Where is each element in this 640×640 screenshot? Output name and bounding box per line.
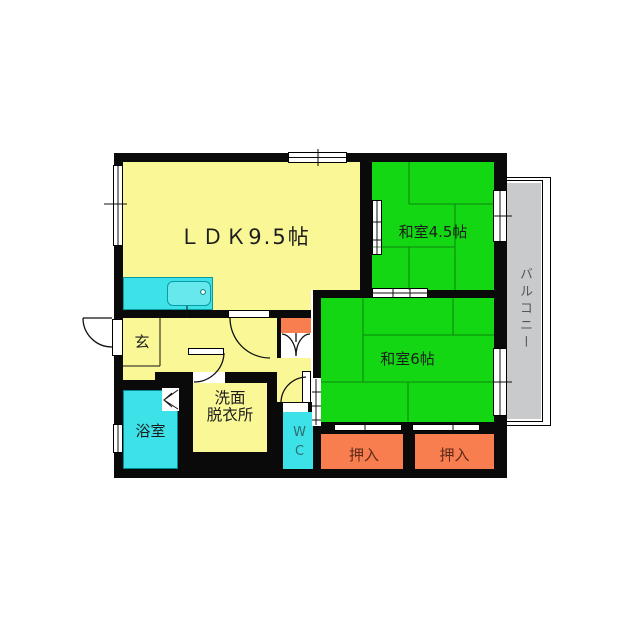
floorplan: ＬＤＫ9.5帖 和室4.5帖 和室6帖 玄 浴室 洗面 脱衣所 WC 押入 押入… bbox=[0, 0, 640, 640]
room-label-closet-left: 押入 bbox=[321, 444, 407, 465]
hall-storage bbox=[281, 318, 311, 333]
entrance-door-opening bbox=[112, 319, 123, 356]
sliding-door-hall-6 bbox=[312, 378, 321, 426]
room-label-japanese-45: 和室4.5帖 bbox=[372, 221, 494, 242]
kitchen-sink bbox=[167, 281, 211, 306]
room-label-japanese-6: 和室6帖 bbox=[321, 348, 494, 369]
room-label-ldk: ＬＤＫ9.5帖 bbox=[128, 221, 362, 251]
wall-segment bbox=[275, 402, 283, 469]
room-label-balcony: バルコニー bbox=[517, 252, 534, 367]
wall-segment bbox=[193, 452, 283, 469]
wall-segment bbox=[178, 380, 193, 469]
kitchen-counter bbox=[123, 277, 213, 310]
window-balcony-45 bbox=[493, 190, 507, 242]
room-label-entrance: 玄 bbox=[123, 331, 161, 352]
wall-segment bbox=[123, 310, 311, 318]
wall-segment bbox=[123, 380, 193, 390]
washroom-door-leaf bbox=[188, 348, 224, 355]
door-opening-washroom bbox=[193, 372, 225, 383]
window-left-ldk bbox=[113, 165, 123, 246]
sliding-door-45-6 bbox=[372, 288, 428, 298]
room-label-bathroom: 浴室 bbox=[123, 420, 178, 441]
wall-segment bbox=[277, 318, 281, 358]
hallway-strip bbox=[123, 372, 155, 380]
wc-door-leaf bbox=[302, 371, 311, 403]
room-label-closet-right: 押入 bbox=[415, 444, 494, 465]
window-left-bathroom bbox=[113, 424, 123, 453]
closet-right-door bbox=[412, 424, 480, 431]
closet-left-door bbox=[334, 424, 402, 431]
window-balcony-6 bbox=[493, 348, 507, 416]
room-label-wc: WC bbox=[291, 421, 307, 467]
hall-storage-doors bbox=[281, 333, 311, 358]
room-label-washroom: 洗面 脱衣所 bbox=[193, 390, 267, 425]
door-opening-ldk-hall bbox=[228, 310, 270, 318]
window-top bbox=[288, 152, 347, 163]
door-opening-wc bbox=[283, 403, 308, 412]
entrance-door-icon bbox=[83, 318, 112, 347]
bathroom-folding-door bbox=[162, 388, 179, 411]
